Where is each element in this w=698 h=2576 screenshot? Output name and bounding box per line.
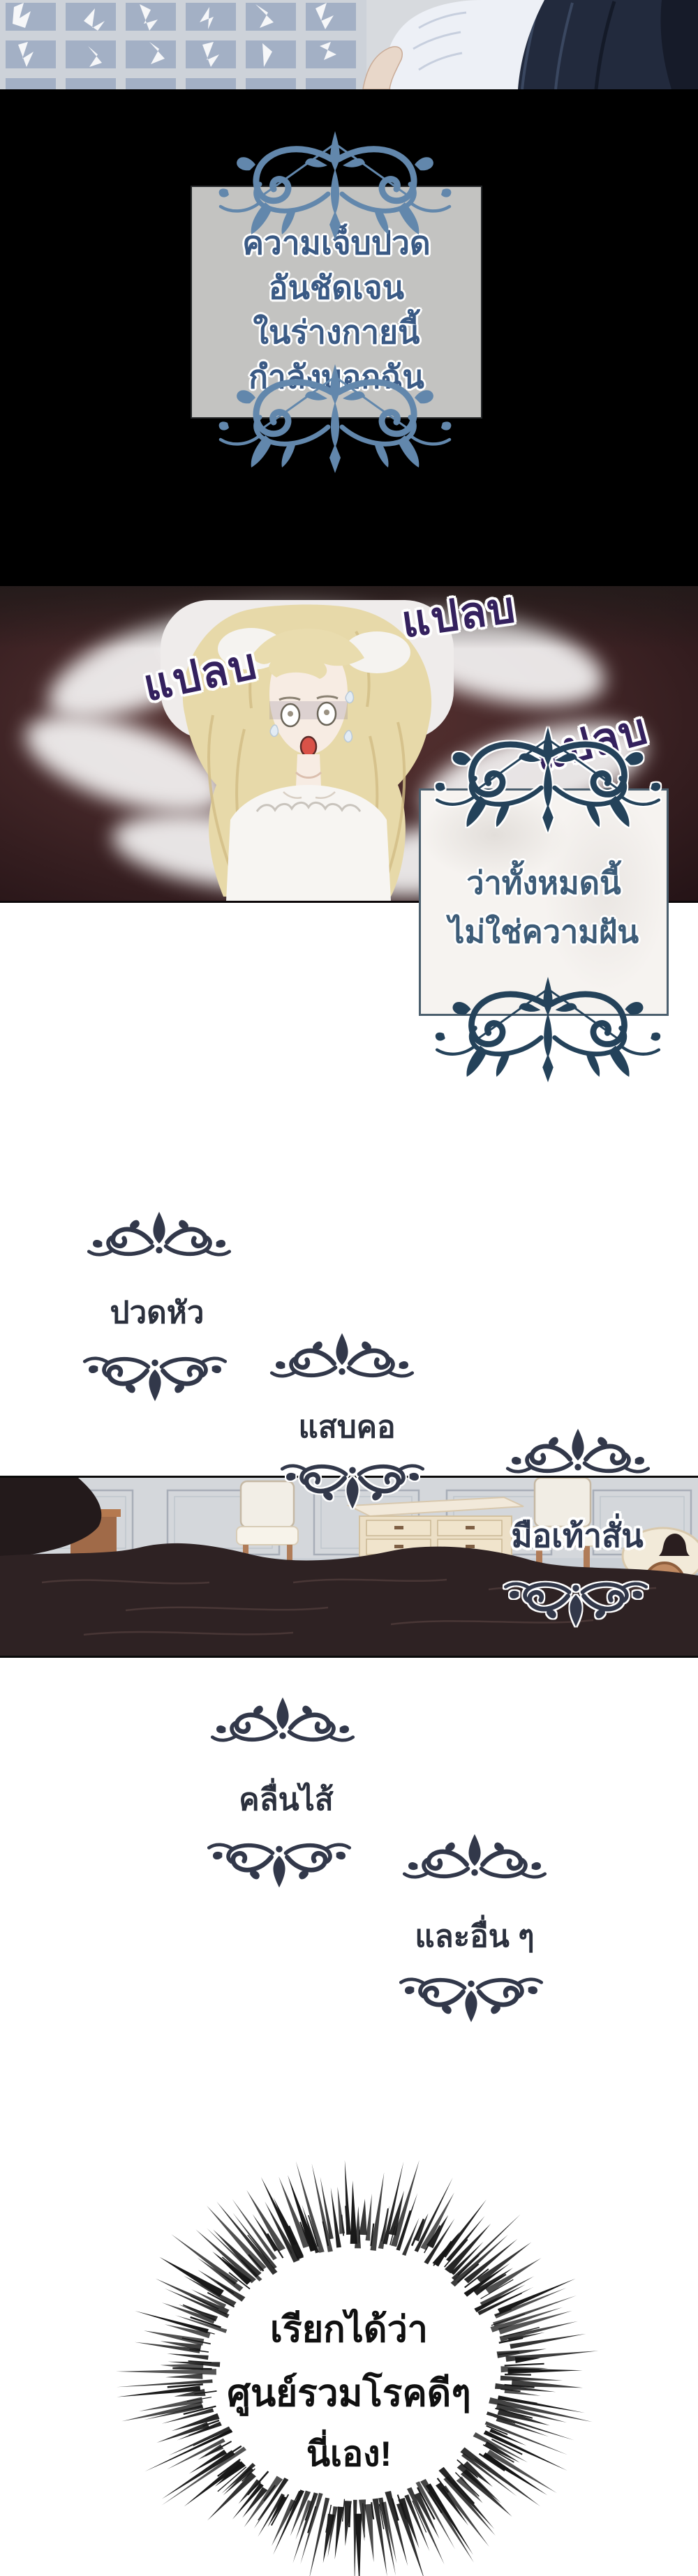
flourish-ornament-top-of-box1 (216, 130, 454, 241)
scroll-ornament-inverted (206, 1839, 352, 1892)
narration-line: ว่าทั้งหมดนี้ (421, 859, 667, 908)
scroll-ornament (86, 1208, 232, 1261)
scroll-ornament-inverted-outlined (503, 1578, 649, 1631)
narration-line: อันชัดเจน (192, 265, 481, 310)
burst-line: เรียกได้ว่า (0, 2300, 698, 2358)
symptom-trembling-label: มือเท้าสั่น (511, 1518, 643, 1554)
symptom-sore-throat: แสบคอ (235, 1402, 459, 1451)
panel-window-scene (0, 0, 698, 89)
mouth-open (301, 737, 316, 756)
scroll-ornament (209, 1693, 356, 1746)
scroll-ornament-inverted (398, 1973, 544, 2026)
burst-line: ศูนย์รวมโรคดีๆ (0, 2364, 698, 2423)
flourish-ornament-top-of-box2 (433, 726, 663, 834)
webtoon-page: ความเจ็บปวด อันชัดเจน ในร่างกายนี้ กำลัง… (0, 0, 698, 2576)
narration-line: ไม่ใช่ความฝัน (421, 908, 667, 957)
burst-line: นี่เอง! (0, 2427, 698, 2482)
scroll-ornament-inverted-outlined (279, 1460, 426, 1513)
scroll-ornament (505, 1425, 651, 1478)
flourish-ornament-bottom-of-box1 (216, 363, 454, 474)
neck (296, 754, 321, 786)
flourish-ornament-bottom-of-box2 (433, 975, 663, 1084)
narration-line: ในร่างกายนี้ (192, 310, 481, 354)
symptom-nausea: คลื่นไส้ (174, 1775, 398, 1824)
symptom-trembling: มือเท้าสั่น (473, 1511, 682, 1562)
nightgown (226, 785, 391, 901)
scroll-ornament (269, 1329, 415, 1382)
scroll-ornament-inverted (82, 1352, 228, 1405)
window-scene-art (0, 0, 698, 89)
symptom-others: และอื่น ๆ (363, 1912, 586, 1961)
scroll-ornament (401, 1830, 548, 1883)
symptom-headache: ปวดหัว (45, 1288, 269, 1337)
